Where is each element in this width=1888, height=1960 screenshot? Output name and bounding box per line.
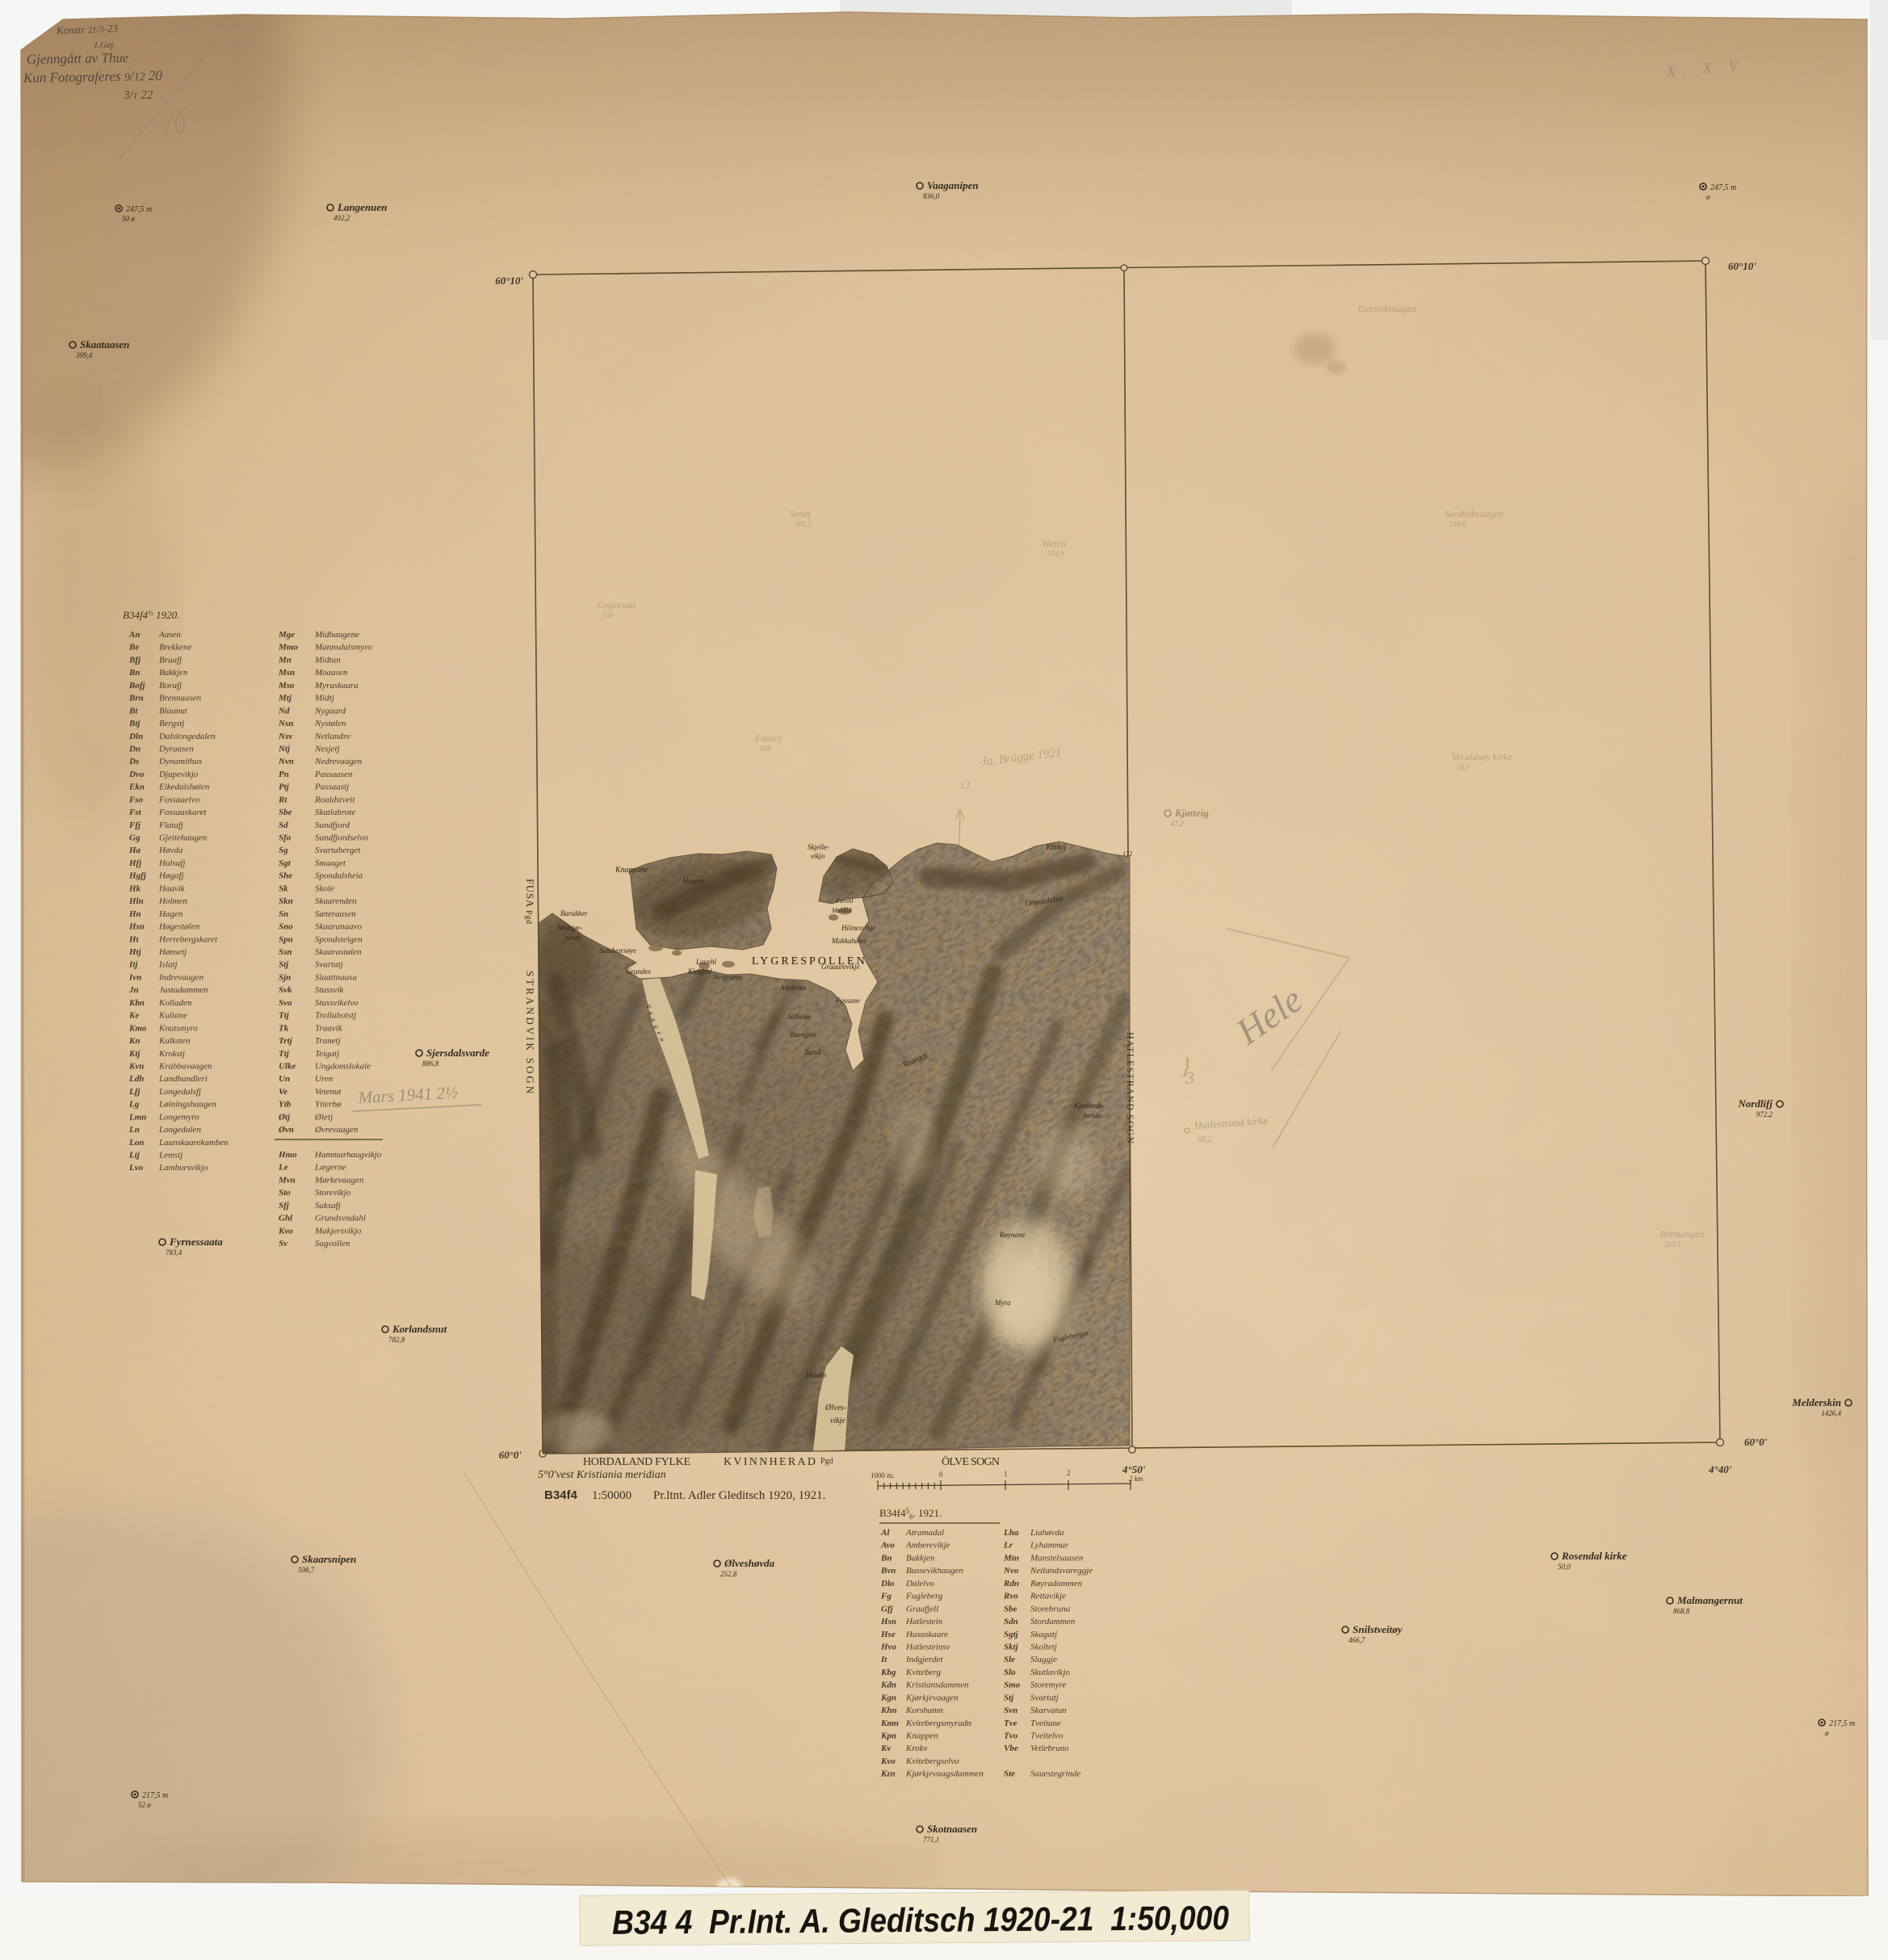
- svg-text:HATLESTRAND SOGN: HATLESTRAND SOGN: [1125, 1032, 1136, 1144]
- svg-text:Midhaugene: Midhaugene: [314, 630, 359, 640]
- svg-text:559: 559: [602, 611, 614, 619]
- svg-text:Kpn: Kpn: [880, 1731, 896, 1741]
- svg-text:Gygrestøl: Gygrestøl: [598, 599, 636, 611]
- svg-text:Sundfjordselvo: Sundfjordselvo: [315, 833, 368, 843]
- svg-text:Kolladen: Kolladen: [158, 998, 192, 1008]
- svg-text:Sno: Sno: [279, 922, 293, 932]
- svg-text:Svo: Svo: [279, 998, 292, 1008]
- svg-text:Nygaard: Nygaard: [314, 706, 346, 716]
- svg-text:Kultane: Kultane: [158, 1011, 187, 1021]
- svg-text:1:50000: 1:50000: [592, 1489, 631, 1502]
- svg-text:466,7: 466,7: [1349, 1636, 1366, 1644]
- svg-text:Dn: Dn: [128, 745, 141, 754]
- svg-text:Pr.ltnt. Adler Gleditsch 1920,: Pr.ltnt. Adler Gleditsch 1920, 1921.: [653, 1489, 825, 1502]
- svg-text:Islatj: Islatj: [158, 960, 178, 970]
- svg-text:Djupevikjo: Djupevikjo: [158, 770, 199, 779]
- svg-text:Krokstj: Krokstj: [158, 1049, 185, 1059]
- svg-text:Manstelsaasen: Manstelsaasen: [1030, 1553, 1084, 1563]
- svg-text:Gersvikvaagen: Gersvikvaagen: [1358, 303, 1416, 314]
- svg-text:Kjøtlands-: Kjøtlands-: [1073, 1102, 1105, 1110]
- svg-text:Skutlavikjo: Skutlavikjo: [1030, 1668, 1070, 1677]
- svg-text:Hammarhaugvikjo: Hammarhaugvikjo: [314, 1150, 382, 1160]
- svg-text:Hk: Hk: [128, 883, 141, 893]
- svg-text:Ekn: Ekn: [128, 783, 145, 792]
- svg-text:Fossaaskaret: Fossaaskaret: [158, 808, 207, 817]
- svg-text:Lfj: Lfj: [128, 1087, 141, 1097]
- svg-text:Mvn: Mvn: [278, 1175, 296, 1185]
- svg-text:She: She: [279, 871, 292, 881]
- svg-text:886,8: 886,8: [422, 1060, 439, 1068]
- svg-text:Uren: Uren: [315, 1074, 334, 1084]
- svg-text:Bussevikhaugen: Bussevikhaugen: [906, 1566, 963, 1576]
- svg-text:Bn: Bn: [128, 668, 140, 678]
- svg-text:Malmangernut: Malmangernut: [1676, 1594, 1743, 1606]
- svg-text:Blaanut: Blaanut: [159, 706, 188, 716]
- svg-text:Al: Al: [880, 1528, 890, 1538]
- svg-text:Tk: Tk: [279, 1023, 289, 1033]
- svg-text:Vetenut: Vetenut: [315, 1087, 342, 1097]
- svg-text:Stussvik: Stussvik: [315, 985, 345, 995]
- svg-text:60°0': 60°0': [499, 1449, 522, 1461]
- svg-text:Sk: Sk: [279, 883, 288, 893]
- svg-text:Moaasen: Moaasen: [314, 668, 348, 678]
- svg-text:Skjelle-: Skjelle-: [808, 843, 829, 851]
- svg-text:Mmo: Mmo: [278, 643, 298, 653]
- svg-text:Fugleberg: Fugleberg: [905, 1592, 943, 1601]
- svg-text:Krokv: Krokv: [905, 1744, 928, 1753]
- svg-text:Skoltetj: Skoltetj: [1030, 1643, 1057, 1652]
- svg-text:Solheim: Solheim: [787, 1013, 811, 1021]
- svg-text:492,2: 492,2: [334, 214, 350, 222]
- svg-text:50,0: 50,0: [1558, 1563, 1571, 1571]
- svg-text:Amberevikje: Amberevikje: [905, 1541, 950, 1551]
- svg-text:868,8: 868,8: [1673, 1607, 1690, 1615]
- svg-text:Øvn: Øvn: [278, 1125, 294, 1135]
- svg-text:Veraldsøy kirke: Veraldsøy kirke: [1452, 751, 1512, 762]
- svg-text:Sv: Sv: [279, 1239, 287, 1249]
- svg-text:Btj: Btj: [128, 719, 141, 728]
- svg-text:548: 548: [760, 745, 771, 753]
- svg-text:Vbe: Vbe: [1004, 1744, 1018, 1753]
- svg-text:Sktj: Sktj: [1004, 1643, 1019, 1652]
- svg-text:Sæteraasen: Sæteraasen: [315, 909, 356, 919]
- svg-text:Myra: Myra: [994, 1299, 1011, 1307]
- svg-text:Hvo: Hvo: [880, 1643, 896, 1652]
- svg-text:598,7: 598,7: [298, 1566, 315, 1574]
- svg-text:Kjøtteig: Kjøtteig: [1174, 807, 1209, 819]
- svg-text:Hatlestein: Hatlestein: [905, 1617, 943, 1626]
- svg-text:Dynamithus: Dynamithus: [158, 757, 202, 766]
- svg-text:Sbe: Sbe: [1004, 1604, 1017, 1614]
- svg-text:Lmn: Lmn: [128, 1112, 146, 1122]
- svg-text:Konstr 21/3-23: Konstr 21/3-23: [56, 22, 119, 36]
- svg-text:Skaarastølen: Skaarastølen: [315, 947, 362, 957]
- svg-text:Ds: Ds: [128, 757, 139, 766]
- svg-text:Skaarenden: Skaarenden: [315, 896, 357, 906]
- svg-text:Haalo: Haalo: [805, 1371, 826, 1380]
- svg-text:Neshjør-: Neshjør-: [556, 924, 582, 932]
- svg-text:Kn: Kn: [128, 1036, 140, 1046]
- svg-text:Skagatj: Skagatj: [1030, 1630, 1057, 1639]
- svg-text:Nsv: Nsv: [278, 732, 292, 741]
- svg-text:Makkahølet: Makkahølet: [831, 937, 866, 945]
- svg-text:Longemyro: Longemyro: [158, 1112, 199, 1122]
- svg-text:HORDALAND FYLKE: HORDALAND FYLKE: [583, 1456, 690, 1468]
- svg-text:Sdn: Sdn: [1004, 1617, 1018, 1626]
- svg-text:Passaastj: Passaastj: [314, 783, 349, 792]
- svg-text:Storemyre: Storemyre: [1030, 1681, 1067, 1690]
- svg-text:Kvitebergselvo: Kvitebergselvo: [905, 1756, 959, 1766]
- svg-text:Lemstj: Lemstj: [158, 1151, 183, 1160]
- svg-text:172: 172: [1122, 850, 1132, 858]
- svg-text:247,5 m: 247,5 m: [1710, 183, 1736, 192]
- svg-text:Kjørkjevaagen: Kjørkjevaagen: [905, 1693, 959, 1702]
- svg-text:Krabbavaagen: Krabbavaagen: [158, 1062, 212, 1072]
- svg-text:60°10': 60°10': [1728, 260, 1756, 272]
- svg-text:Bruafj: Bruafj: [159, 655, 182, 665]
- svg-text:Skotnaasen: Skotnaasen: [927, 1823, 977, 1835]
- svg-text:Khn: Khn: [880, 1706, 897, 1715]
- svg-text:0: 0: [939, 1471, 943, 1479]
- svg-text:3/1 22: 3/1 22: [123, 89, 153, 102]
- svg-text:Gfj: Gfj: [881, 1604, 894, 1614]
- svg-text:2 km: 2 km: [1129, 1475, 1143, 1483]
- svg-text:Avo: Avo: [880, 1541, 895, 1551]
- svg-text:Haavik: Haavik: [158, 883, 186, 893]
- svg-text:Trtj: Trtj: [279, 1036, 293, 1046]
- svg-text:Taangjen: Taangjen: [790, 1030, 817, 1039]
- svg-text:Herrebergskaret: Herrebergskaret: [158, 934, 218, 944]
- svg-text:Fossane: Fossane: [835, 997, 860, 1005]
- svg-text:Tveitelvo: Tveitelvo: [1030, 1731, 1064, 1741]
- svg-text:Nvo: Nvo: [1003, 1566, 1019, 1576]
- svg-text:60,2: 60,2: [1198, 1135, 1212, 1144]
- svg-text:Mørkevaagen: Mørkevaagen: [314, 1175, 364, 1185]
- svg-text:Haaen: Haaen: [682, 877, 704, 886]
- svg-text:Sundfjord: Sundfjord: [315, 821, 350, 830]
- svg-text:1426,4: 1426,4: [1821, 1409, 1841, 1417]
- svg-text:It: It: [880, 1655, 887, 1664]
- svg-text:Hagen: Hagen: [158, 909, 183, 919]
- svg-text:50 ø: 50 ø: [122, 215, 135, 223]
- svg-text:60°10': 60°10': [495, 275, 523, 287]
- svg-text:Bn: Bn: [880, 1553, 892, 1563]
- svg-text:Mge: Mge: [278, 630, 295, 640]
- svg-text:Øtj: Øtj: [278, 1112, 291, 1122]
- svg-text:Sandvikvaagen: Sandvikvaagen: [1445, 508, 1504, 519]
- svg-text:Justadammen: Justadammen: [159, 985, 208, 995]
- svg-text:Lon: Lon: [128, 1138, 144, 1148]
- svg-text:Lg: Lg: [128, 1100, 140, 1110]
- svg-text:247,5 m: 247,5 m: [126, 205, 152, 214]
- svg-text:Nesjetj: Nesjetj: [314, 745, 340, 754]
- svg-text:Be: Be: [128, 643, 139, 653]
- svg-text:Hn: Hn: [128, 909, 141, 919]
- svg-text:Teigatj: Teigatj: [315, 1049, 339, 1059]
- svg-text:300,2: 300,2: [794, 520, 812, 528]
- svg-text:Sgtj: Sgtj: [1004, 1630, 1019, 1639]
- svg-text:Bfj: Bfj: [128, 655, 141, 665]
- svg-text:Netlandsvareggje: Netlandsvareggje: [1030, 1566, 1093, 1576]
- svg-text:3: 3: [1185, 1068, 1194, 1088]
- svg-text:Sjn: Sjn: [279, 972, 291, 982]
- svg-text:Tvo: Tvo: [1004, 1731, 1018, 1741]
- svg-text:B34f4: B34f4: [544, 1488, 578, 1502]
- svg-text:Furehl: Furehl: [835, 897, 854, 904]
- svg-text:Skole: Skole: [315, 883, 334, 893]
- svg-text:Indgjerdet: Indgjerdet: [905, 1655, 943, 1664]
- svg-text:Barakker: Barakker: [560, 909, 588, 917]
- svg-text:Borafj: Borafj: [159, 681, 182, 690]
- svg-text:Graafjell: Graafjell: [906, 1604, 938, 1614]
- svg-text:An: An: [128, 630, 140, 640]
- svg-text:Smo: Smo: [1004, 1681, 1021, 1690]
- svg-text:Ke: Ke: [128, 1011, 139, 1021]
- svg-text:Nesjesøye: Nesjesøye: [712, 973, 742, 981]
- svg-text:Brentangen: Brentangen: [1659, 1228, 1705, 1240]
- svg-text:Ht: Ht: [128, 934, 140, 944]
- svg-text:Ytterbø: Ytterbø: [315, 1100, 342, 1110]
- svg-text:Kmo: Kmo: [128, 1023, 147, 1033]
- svg-text:Ha: Ha: [128, 846, 141, 855]
- svg-text:Dln: Dln: [128, 732, 143, 741]
- svg-text:Hatlesteinsv: Hatlesteinsv: [905, 1643, 950, 1652]
- svg-text:Mannsdalsmyro: Mannsdalsmyro: [314, 643, 372, 653]
- svg-text:ø: ø: [1824, 1729, 1829, 1737]
- svg-text:Makjersvikjo: Makjersvikjo: [314, 1226, 362, 1236]
- svg-text:38,0: 38,0: [1456, 763, 1470, 771]
- svg-text:Kalksten: Kalksten: [158, 1036, 191, 1046]
- svg-text:Brn: Brn: [128, 694, 144, 703]
- svg-text:Longedalsfj: Longedalsfj: [158, 1087, 201, 1097]
- svg-text:13: 13: [959, 779, 971, 791]
- svg-text:Trollabotstj: Trollabotstj: [315, 1011, 356, 1021]
- svg-text:5°0'vest Kristiania meridian: 5°0'vest Kristiania meridian: [538, 1469, 666, 1481]
- svg-text:Kristiansdammen: Kristiansdammen: [905, 1681, 969, 1690]
- svg-text:972,2: 972,2: [1756, 1110, 1773, 1119]
- svg-text:Senef: Senef: [790, 508, 812, 519]
- svg-text:Launskaarekamben: Launskaarekamben: [158, 1138, 229, 1148]
- svg-text:Høvda: Høvda: [158, 846, 183, 855]
- svg-text:Pn: Pn: [279, 770, 289, 779]
- svg-text:Brekkene: Brekkene: [159, 643, 192, 653]
- svg-text:Ungdomslokale: Ungdomslokale: [315, 1062, 371, 1072]
- svg-text:Røyradammen: Røyradammen: [1030, 1579, 1083, 1589]
- svg-text:Le: Le: [278, 1163, 288, 1173]
- svg-text:252,8: 252,8: [720, 1570, 737, 1578]
- svg-text:Dalslongedalen: Dalslongedalen: [158, 732, 216, 741]
- svg-text:Fso: Fso: [128, 795, 144, 804]
- svg-text:Gg: Gg: [129, 833, 141, 843]
- svg-text:Eikedalshølen: Eikedalshølen: [158, 783, 210, 792]
- svg-text:Dlo: Dlo: [880, 1579, 895, 1589]
- svg-text:Mn: Mn: [278, 655, 292, 665]
- svg-text:Tranetj: Tranetj: [315, 1036, 341, 1046]
- svg-text:Dvo: Dvo: [128, 770, 145, 779]
- svg-text:Lægerne: Lægerne: [314, 1163, 346, 1173]
- svg-text:574,0: 574,0: [1047, 550, 1064, 558]
- svg-text:Gjenngått av Thue: Gjenngått av Thue: [27, 50, 129, 67]
- svg-text:Grundsvndahl: Grundsvndahl: [315, 1214, 366, 1223]
- svg-text:Hgfj: Hgfj: [128, 871, 147, 881]
- svg-text:Msn: Msn: [278, 668, 295, 678]
- svg-text:Kbg: Kbg: [880, 1668, 896, 1677]
- svg-text:Ølves-: Ølves-: [824, 1404, 846, 1412]
- svg-text:Tveitane: Tveitane: [1030, 1719, 1061, 1728]
- svg-text:Traavik: Traavik: [315, 1023, 343, 1033]
- svg-text:Løiningshaugen: Løiningshaugen: [158, 1100, 216, 1110]
- svg-text:Korshamn: Korshamn: [905, 1706, 943, 1715]
- svg-text:Skn: Skn: [279, 896, 293, 906]
- svg-text:STRANDVIK SOGN: STRANDVIK SOGN: [524, 971, 536, 1094]
- svg-text:Fossaaelvo: Fossaaelvo: [158, 795, 200, 804]
- svg-text:Heien: Heien: [1042, 538, 1066, 549]
- svg-text:Sbe: Sbe: [279, 808, 292, 817]
- svg-text:vikje: vikje: [830, 1416, 845, 1425]
- svg-text:Ffj: Ffj: [128, 821, 141, 830]
- svg-text:Nsn: Nsn: [278, 719, 293, 728]
- svg-text:Spn: Spn: [279, 934, 293, 944]
- svg-text:Halsafj: Halsafj: [158, 858, 185, 868]
- svg-text:Høgestølen: Høgestølen: [158, 922, 200, 932]
- svg-text:Sle: Sle: [1004, 1655, 1015, 1664]
- svg-text:Mtj: Mtj: [278, 694, 292, 703]
- svg-text:Melderskin: Melderskin: [1791, 1396, 1841, 1408]
- svg-text:Dalelvo: Dalelvo: [905, 1579, 934, 1589]
- svg-text:Mtn: Mtn: [1003, 1553, 1019, 1563]
- svg-text:Skarvatun: Skarvatun: [1030, 1706, 1067, 1715]
- svg-text:Sgt: Sgt: [279, 858, 292, 868]
- svg-text:Hfj: Hfj: [128, 858, 142, 868]
- svg-text:217,5 m: 217,5 m: [142, 1791, 168, 1800]
- svg-text:783,4: 783,4: [166, 1249, 183, 1257]
- svg-text:Kdn: Kdn: [880, 1681, 896, 1690]
- svg-text:Ytb: Ytb: [279, 1100, 292, 1110]
- svg-text:Korlandsnut: Korlandsnut: [392, 1323, 447, 1335]
- svg-text:Kroktj: Kroktj: [1045, 843, 1066, 852]
- svg-text:Hmo: Hmo: [278, 1150, 297, 1160]
- svg-text:Gjeitehaugen: Gjeitehaugen: [159, 833, 208, 843]
- svg-text:Skaaranaavo: Skaaranaavo: [315, 922, 363, 932]
- svg-text:Jn: Jn: [128, 985, 139, 995]
- svg-text:Slaggje: Slaggje: [1030, 1655, 1057, 1664]
- svg-text:203,5: 203,5: [1664, 1240, 1681, 1249]
- svg-text:60°0': 60°0': [1744, 1436, 1768, 1448]
- svg-text:399,4: 399,4: [75, 351, 93, 359]
- svg-text:1: 1: [1004, 1470, 1008, 1478]
- svg-text:Tve: Tve: [1004, 1719, 1017, 1728]
- svg-text:Ttj: Ttj: [279, 1049, 290, 1059]
- svg-text:Sto: Sto: [279, 1188, 291, 1198]
- svg-text:Bergstj: Bergstj: [159, 719, 184, 728]
- svg-text:Høgafj: Høgafj: [158, 871, 184, 881]
- svg-text:Netlandsv: Netlandsv: [314, 732, 350, 741]
- svg-text:Spondalsheia: Spondalsheia: [315, 871, 363, 881]
- svg-text:Stj: Stj: [279, 960, 289, 970]
- svg-text:Knappen: Knappen: [905, 1731, 938, 1741]
- svg-text:Hsn: Hsn: [128, 922, 145, 932]
- svg-text:2: 2: [1067, 1469, 1071, 1477]
- svg-text:Sund: Sund: [804, 1048, 821, 1057]
- svg-text:Vetlebruno: Vetlebruno: [1030, 1744, 1069, 1753]
- svg-text:Bakkjen: Bakkjen: [159, 668, 188, 678]
- svg-text:Ølveshøvda: Ølveshøvda: [724, 1557, 775, 1569]
- svg-text:Sjersdalsvarde: Sjersdalsvarde: [426, 1047, 489, 1059]
- svg-text:Ghl: Ghl: [279, 1214, 293, 1223]
- svg-text:Bakkjen: Bakkjen: [906, 1553, 935, 1563]
- svg-text:Htj: Htj: [128, 947, 142, 957]
- svg-text:Munkhl: Munkhl: [831, 907, 852, 914]
- svg-text:Myraskaara: Myraskaara: [314, 681, 359, 690]
- svg-text:Midtun: Midtun: [314, 655, 341, 665]
- svg-text:Rvo: Rvo: [1003, 1592, 1018, 1601]
- svg-text:Landhandleri: Landhandleri: [158, 1074, 208, 1084]
- svg-text:Itj: Itj: [128, 960, 138, 970]
- svg-text:Storebruna: Storebruna: [1030, 1604, 1071, 1614]
- svg-text:52 ø: 52 ø: [138, 1801, 151, 1809]
- svg-text:Snilstveitøy: Snilstveitøy: [1353, 1623, 1403, 1635]
- svg-text:Pgd: Pgd: [820, 1457, 833, 1466]
- svg-text:Nedrevaagen: Nedrevaagen: [314, 757, 363, 766]
- svg-text:782,8: 782,8: [388, 1336, 405, 1344]
- svg-text:Kv: Kv: [880, 1744, 891, 1753]
- svg-text:Liahøvda: Liahøvda: [1030, 1528, 1064, 1538]
- svg-text:B34 4 Pr.Int. A. Gleditsch 19: B34 4 Pr.Int. A. Gleditsch 1920-21 1:50,…: [612, 1899, 1229, 1941]
- svg-text:Bvn: Bvn: [880, 1566, 896, 1576]
- svg-text:Vaaganipen: Vaaganipen: [927, 179, 979, 191]
- svg-text:Hse: Hse: [880, 1630, 896, 1639]
- svg-text:Folms: Folms: [218, 38, 250, 53]
- svg-text:Slaattnaasa: Slaattnaasa: [315, 972, 357, 982]
- svg-text:Stj: Stj: [1004, 1693, 1014, 1702]
- svg-text:Ivn: Ivn: [128, 972, 141, 982]
- svg-text:217,5 m: 217,5 m: [1829, 1719, 1855, 1728]
- svg-text:Svartaberget: Svartaberget: [315, 846, 361, 855]
- svg-text:Kzn: Kzn: [880, 1769, 896, 1779]
- svg-text:Kvo: Kvo: [278, 1226, 293, 1236]
- svg-text:Bt: Bt: [128, 706, 138, 716]
- svg-text:Abetenes: Abetenes: [779, 984, 807, 992]
- svg-text:Rt: Rt: [278, 795, 287, 804]
- svg-text:Flatafj: Flatafj: [158, 821, 183, 830]
- svg-text:Kmn: Kmn: [880, 1719, 899, 1728]
- svg-text:Lvo: Lvo: [128, 1163, 144, 1173]
- svg-text:Dyraasen: Dyraasen: [158, 745, 194, 754]
- svg-text:Lauvhl: Lauvhl: [695, 958, 717, 966]
- svg-text:Røynane: Røynane: [999, 1231, 1026, 1239]
- svg-text:Slo: Slo: [1004, 1668, 1016, 1677]
- svg-text:Mso: Mso: [278, 681, 295, 690]
- svg-text:771,1: 771,1: [923, 1836, 939, 1844]
- svg-text:Sundvorsøye: Sundvorsøye: [599, 946, 636, 955]
- svg-text:høvda: høvda: [1084, 1111, 1101, 1119]
- svg-text:Øvrevaagen: Øvrevaagen: [314, 1125, 359, 1135]
- svg-text:Kirkjehl: Kirkjehl: [687, 967, 712, 976]
- svg-text:Saksafj: Saksafj: [315, 1201, 341, 1211]
- svg-text:836,0: 836,0: [923, 192, 940, 200]
- svg-text:Ptj: Ptj: [279, 783, 290, 792]
- svg-text:Lha: Lha: [1003, 1528, 1019, 1538]
- svg-text:Rdn: Rdn: [1003, 1579, 1019, 1589]
- svg-text:Lyhammar: Lyhammar: [1030, 1541, 1069, 1551]
- svg-text:Lambursvikjo: Lambursvikjo: [158, 1163, 208, 1173]
- svg-text:Rosendal kirke: Rosendal kirke: [1561, 1550, 1627, 1562]
- svg-text:Midtj: Midtj: [314, 694, 334, 703]
- svg-text:Knutsmyro: Knutsmyro: [158, 1023, 198, 1033]
- svg-text:Skutlabrote: Skutlabrote: [315, 808, 355, 817]
- svg-text:Grundes: Grundes: [626, 967, 651, 976]
- svg-text:Kjørkjevaagsdammen: Kjørkjevaagsdammen: [905, 1769, 984, 1779]
